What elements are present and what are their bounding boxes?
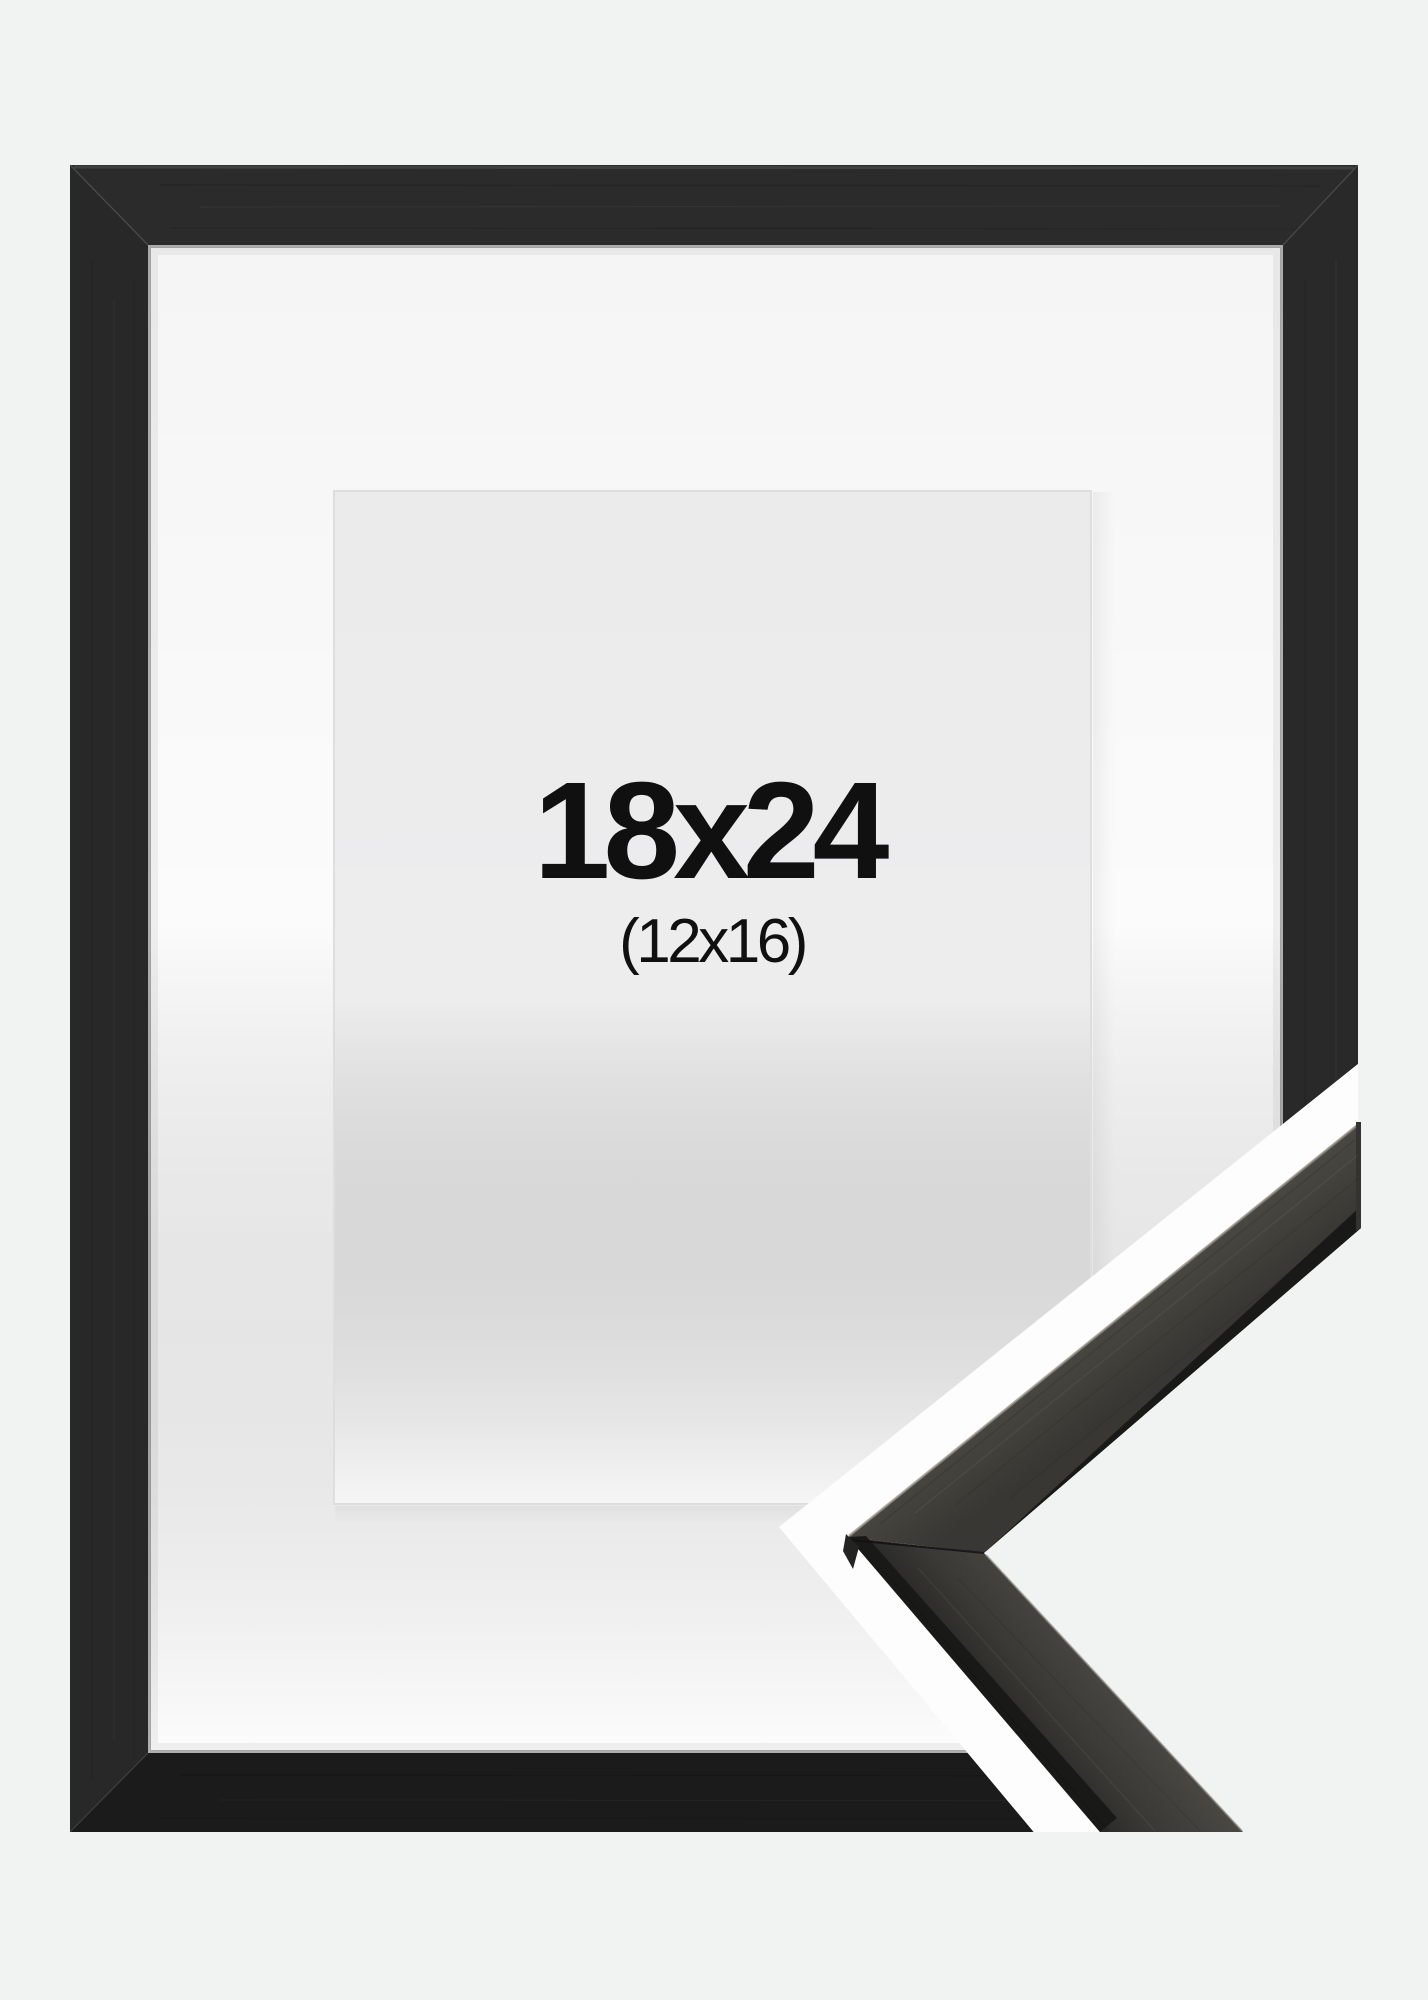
framed-picture-product-photo: 18x24 (12x16) [0,0,1428,2000]
size-label: 18x24 [534,754,890,908]
frame-bar-top [70,165,1358,245]
matted-size-label: (12x16) [619,907,805,976]
mat-opening-shading [333,490,1092,1505]
frame-bar-left [70,165,148,1832]
corner-sample-upper-arm-end-face [1356,1122,1361,1231]
frame-top-highlight [74,167,1354,168]
page: { "product_photo": { "size_label": "18x2… [0,0,1428,2000]
